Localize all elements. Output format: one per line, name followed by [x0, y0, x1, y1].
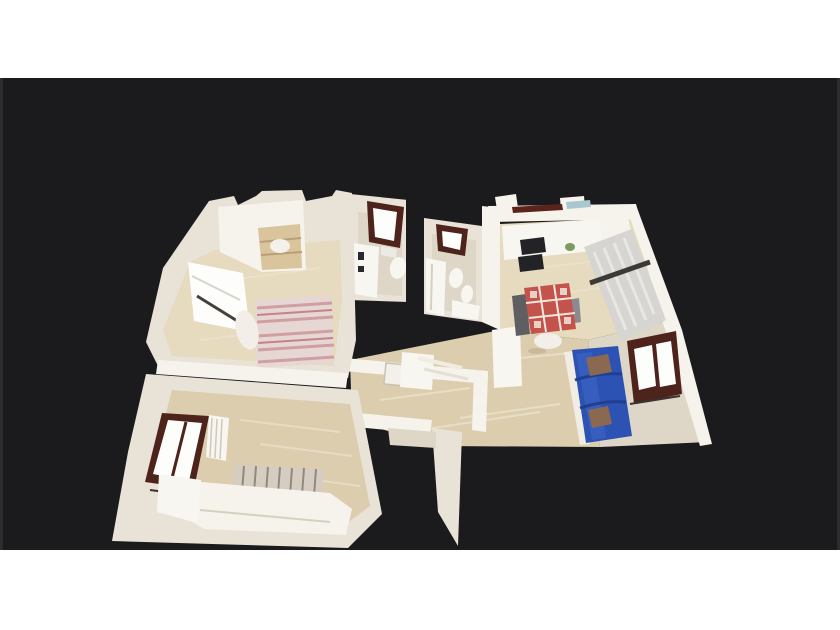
dollhouse-svg [0, 78, 840, 550]
hall-wall-vertical [472, 372, 488, 432]
bedroom2-radiator [206, 415, 229, 461]
vanity-detail-1 [358, 252, 364, 260]
room-bedroom-1 [146, 190, 356, 388]
room-bathroom-2 [424, 218, 482, 322]
page-bottom-band [0, 550, 840, 630]
kitchen-cooktop [518, 254, 544, 272]
bathroom2-bathtub [426, 258, 446, 316]
vanity-detail-2 [358, 266, 364, 272]
scan-gap-bathrooms [406, 196, 424, 312]
page-top-band [0, 0, 840, 78]
bathroom2-window [436, 224, 468, 256]
living-window [627, 331, 682, 404]
dining-chair-bottom [534, 333, 562, 349]
kitchen-oven [520, 237, 546, 255]
page: { "viewer": { "type": "3d-dollhouse-view… [0, 0, 840, 630]
wardrobe-contents [270, 239, 290, 253]
floor-mat [528, 348, 546, 354]
bathroom1-window [367, 201, 404, 248]
canvas-left-edge [0, 78, 3, 550]
sofa-pillow-top [586, 354, 612, 376]
bathroom1-vanity [354, 243, 379, 298]
bathtub-inner-line [431, 264, 432, 310]
table-cloth [524, 283, 576, 334]
room-bathroom-1 [350, 194, 408, 302]
room-bedroom-2 [112, 374, 382, 548]
kitchen-left-wall [482, 206, 500, 330]
dollhouse-model[interactable] [112, 190, 712, 548]
3d-viewer-canvas[interactable] [0, 78, 840, 550]
kitchen-plant [565, 243, 575, 251]
bottom-wall-wedge [432, 428, 462, 546]
sofa-pillow-bottom [588, 406, 612, 428]
